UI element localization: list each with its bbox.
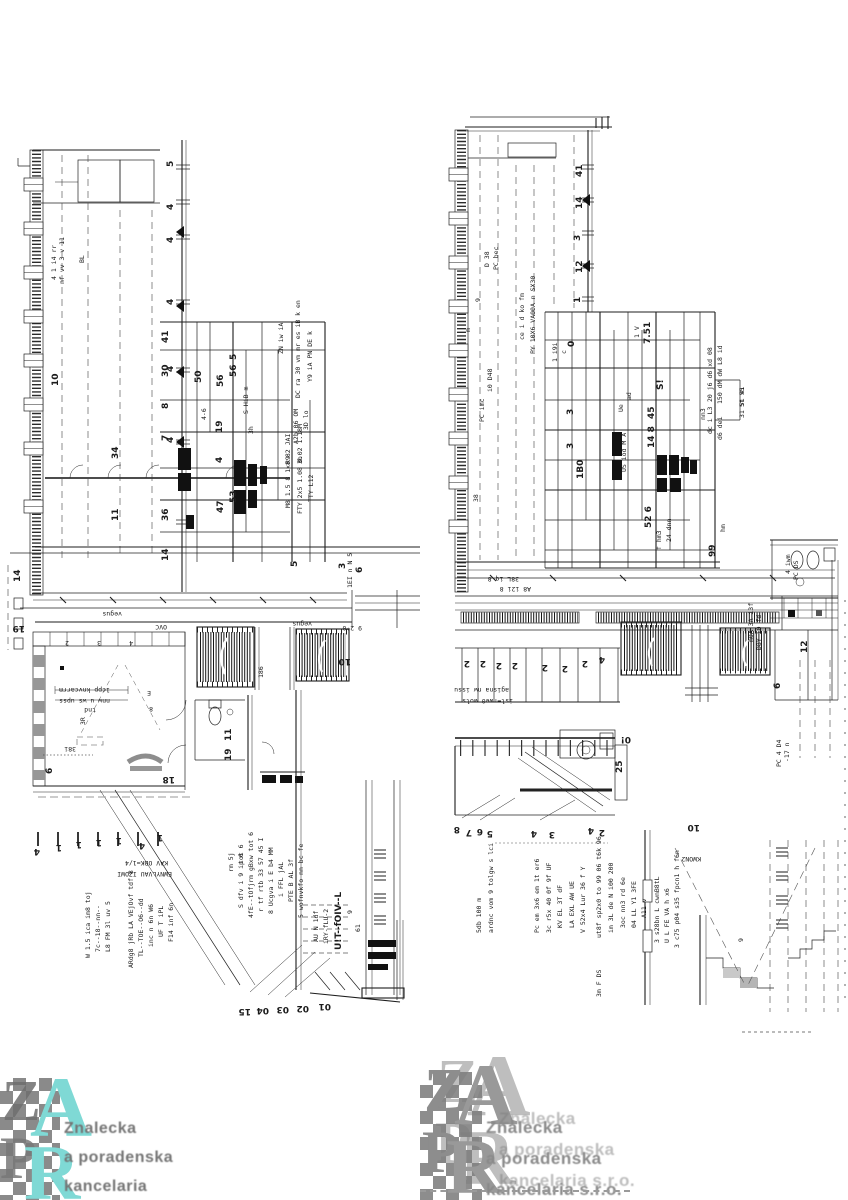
plan-label: 1: [56, 842, 62, 852]
labels-right: 41143121D 38PC bec9mi0 D48PC imc38ce i d…: [454, 164, 810, 997]
plan-label: 03: [276, 1004, 289, 1014]
plan-label: agisna nw issu: [454, 686, 509, 694]
plan-label: 04 LL Y1 3FE: [630, 881, 638, 928]
plan-label: c: [560, 350, 568, 354]
plan-label: 2: [480, 658, 486, 668]
plan-label: dc i L3: [706, 407, 714, 434]
plan-label: 47: [216, 500, 226, 513]
plan-label: 14: [161, 548, 171, 561]
plan-label: 1: [76, 839, 82, 849]
plan-label: 5db 100 m: [475, 898, 483, 933]
plan-label: 1: [573, 297, 583, 303]
plan-label: 8 Ucgva i E b4 MM: [267, 847, 275, 914]
plan-label: rm 5j: [227, 852, 235, 872]
watermark-text-center: Znalecka a poradenska kancelaria s.r.o.: [486, 1112, 622, 1200]
plan-label: 8: [149, 705, 153, 713]
plan-label: 7.51: [643, 322, 653, 344]
plan-label: nnw u ws upss: [59, 697, 110, 705]
plan-label: 25: [615, 760, 625, 773]
plan-label: PC imc: [478, 398, 486, 422]
plan-label: 2: [496, 660, 502, 670]
plan-label: 4: [166, 299, 176, 305]
plan-label: 3m F DS: [595, 970, 603, 997]
plan-label: 4 iwm: [784, 554, 792, 574]
plan-label: 3: [573, 235, 583, 241]
plan-label: PTE B AL 3f: [287, 859, 295, 902]
plan-label: m0A 3A i3f: [747, 603, 755, 642]
plan-label: 41: [575, 164, 585, 177]
plan-label: 0: [567, 341, 577, 347]
plan-label: 2: [562, 663, 568, 673]
plan-label: 4-6: [200, 408, 208, 420]
plan-label: 7: [161, 435, 171, 441]
plan-label: 3: [566, 443, 576, 449]
logo-divider: [420, 1190, 630, 1192]
labels-left: 544444104 1 i4 rrnf vv 3 v 11BL413087341…: [12, 161, 365, 1016]
plan-label: 186: [257, 666, 265, 678]
plan-label: 4: [588, 825, 594, 835]
plan-label: TL--TOE--O6--dd: [137, 898, 145, 957]
plan-label: UF T iPL: [157, 906, 165, 937]
plan-label: 10: [687, 822, 700, 832]
plan-label: U!T--fOIV--L: [334, 892, 344, 950]
plan-label: 1EI n N 5: [346, 553, 354, 588]
plan-label: 45: [647, 406, 657, 419]
plan-label: 7c--18--nn--: [94, 905, 102, 952]
plan-label: 150 dM dW L8 id: [716, 345, 724, 404]
plan-label: S dfv i 9 ip 6: [237, 853, 245, 908]
plan-label: 2: [65, 639, 69, 647]
plan-label: d6 dei: [716, 416, 724, 440]
plan-label: i FFL jAL: [277, 862, 285, 897]
plan-label: 56: [216, 374, 226, 387]
plan-label: 2: [542, 662, 548, 672]
plan-label: ce i d ko fm: [518, 293, 526, 340]
plan-label: OVC: [155, 623, 167, 631]
plan-label: 38L iq 8: [488, 575, 519, 583]
plan-label: KV EL 3T dF: [556, 885, 564, 928]
plan-label: ad: [625, 392, 633, 400]
plan-label: ARdg8 jRb LA VEjOvf tdf 8: [127, 870, 135, 968]
plan-label: 14 8: [647, 426, 657, 448]
watermark-logo-center: Z A P R Znalecka a poradenska kancelaria…: [420, 1062, 680, 1200]
watermark-logo-left: Z A P R Znalecka a poradenska kancelaria…: [0, 1072, 240, 1200]
plan-label: 9 2*0: [342, 624, 362, 632]
plan-label: 4fE--tOfjrm gBxw tot 6: [247, 832, 255, 918]
plan-label: 5: [290, 561, 300, 567]
plan-label: KWON2: [681, 855, 701, 863]
plan-label: 14: [13, 569, 23, 582]
plan-label: W 1.5 ica im8 toj: [84, 891, 92, 958]
plan-label: 1 V: [633, 326, 641, 338]
plan-label: m: [464, 328, 472, 332]
watermark-line: Znalecka: [64, 1114, 173, 1143]
plan-label: 1: [96, 837, 102, 847]
plan-label: 24 dnn: [665, 518, 673, 542]
plan-label: BL: [78, 255, 86, 263]
plan-label: R9: [284, 456, 292, 464]
plan-label: 3oc nn3 rd 6e: [619, 877, 627, 928]
plan-label: 6: [477, 826, 483, 836]
plan-label: 52 6: [644, 506, 654, 528]
plan-label: L8 FM 3l uv 5: [104, 901, 112, 952]
plan-label: 4: [599, 654, 605, 664]
plan-label: 8: [454, 824, 460, 834]
plan-label: A11 v: [640, 898, 648, 918]
plan-label: ardnc vom 9 tolgw s lci: [487, 843, 495, 933]
plan-label: 5: [229, 354, 239, 360]
plan-label: inc n 6n W6: [147, 904, 155, 947]
plan-label: 04: [256, 1005, 269, 1015]
plan-label: 2: [599, 827, 605, 837]
plan-label: 36: [161, 508, 171, 521]
plan-label: 19: [215, 420, 225, 433]
plan-label: 2: [464, 658, 470, 668]
plan-label: 3c r5x 40 0f 9f UF: [545, 862, 553, 933]
architectural-drawing: 544444104 1 i4 rrnf vv 3 v 11BL413087341…: [0, 0, 848, 1045]
plan-label: 8: [161, 403, 171, 409]
plan-label: KAV OBK=1/4: [125, 859, 168, 867]
plan-label: 38: [472, 494, 480, 502]
plan-label: ut8f sp2x0 to 99 06 t6k 96: [595, 836, 603, 938]
plan-label: PC bec: [492, 246, 500, 270]
plan-label: 11: [224, 728, 234, 741]
plan-label: isl=rwe0 wols: [462, 697, 513, 705]
plan-label: 30: [161, 364, 171, 377]
plan-label: PY 10X6 VA00A n SX30: [529, 276, 537, 354]
plan-label: r tf rtb 33 57 45 I: [257, 838, 265, 912]
plan-label: 4: [531, 828, 537, 838]
plan-label: Pc em 3x6 em 1t er6: [533, 859, 541, 933]
plan-label: 34: [111, 446, 121, 459]
plan-label: i0 D48: [486, 368, 494, 392]
plan-label: 0!: [621, 734, 631, 744]
plan-label: 12: [800, 640, 810, 653]
watermark-line: kancelaria s.r.o.: [486, 1174, 622, 1200]
plan-label: TTY L12: [307, 475, 315, 502]
plan-label: 02: [296, 1003, 309, 1013]
plan-label: nn3: [699, 408, 707, 420]
plan-label: D 38: [483, 251, 491, 267]
plan-label: iRY-fLU-2: [322, 909, 330, 944]
watermark-line: Znalecka: [486, 1112, 622, 1143]
watermark-line: kancelaria: [64, 1172, 173, 1200]
plan-label: 3 s28bn L cwnB8tL: [653, 876, 661, 943]
plan-label: AU N 1df: [312, 911, 320, 942]
plan-label: S!: [656, 379, 666, 390]
plan-label: 7: [466, 827, 472, 837]
plan-label: PC DS: [792, 560, 800, 580]
plan-label: 3 c75 p04 s35 fpcn1 h f6n: [673, 850, 681, 948]
plan-label: PC 4 D4: [775, 740, 783, 767]
plan-label: vegus: [292, 620, 312, 628]
plan-label: 4: [215, 457, 225, 463]
plan-label: 4 1 i4 rr: [50, 245, 58, 280]
plan-label: 9: [346, 910, 354, 914]
plan-label: 4: [166, 237, 176, 243]
plan-label: 4: [166, 204, 176, 210]
plan-label: 61: [354, 924, 362, 932]
watermark-line: a poradenska: [64, 1143, 173, 1172]
plan-label: US iod M A: [620, 433, 628, 472]
plan-label: tnd: [84, 706, 96, 714]
plan-label: -17 n: [783, 742, 791, 762]
plan-label: ZN iw iA: [277, 323, 285, 354]
plan-label: 10: [338, 656, 351, 666]
watermark-text-left: Znalecka a poradenska kancelaria s.r.o.: [64, 1114, 173, 1200]
plan-label: 5 wofnvkfo nn bc fe: [297, 844, 305, 918]
plan-label: A8 i2i 8: [500, 585, 531, 593]
plan-label: D8Y i0 fd: [755, 615, 763, 650]
plan-label: 6: [773, 683, 783, 689]
plan-label: 4: [139, 840, 145, 850]
plan-label: 3: [97, 639, 101, 647]
plan-label: 3R: [79, 717, 87, 725]
plan-label: Ue: [617, 404, 625, 412]
watermark-line: a poradenska: [486, 1143, 622, 1174]
plan-label: S HiB m: [242, 387, 250, 414]
plan-label: 2: [582, 658, 588, 668]
plan-label: Y9 iA PN DE k: [306, 331, 314, 382]
plan-label: 19: [224, 748, 234, 761]
plan-label: 9: [474, 298, 482, 302]
plan-label: V 52x4 Lur 36 f Y: [579, 866, 587, 933]
plan-label: 12: [575, 260, 585, 273]
plan-label: 41: [161, 330, 171, 343]
plan-label: 19: [12, 623, 25, 633]
plan-label: 4: [129, 639, 133, 647]
plan-label: F14 inf 6n: [167, 903, 175, 942]
plan-label: 5: [487, 828, 493, 838]
plan-label: 1B0: [576, 460, 586, 479]
plan-label: FTY 2x5 1.08 0.02 1.18M: [296, 424, 304, 514]
plan-label: 11: [111, 508, 121, 521]
plan-label: 3b: [296, 456, 304, 464]
plan-label: 3: [566, 409, 576, 415]
plan-label: 5: [166, 161, 176, 167]
plan-label: 50: [194, 370, 204, 383]
plan-label: hm: [719, 524, 727, 532]
plan-label: 18: [162, 774, 175, 784]
plan-label: 3: [549, 829, 555, 839]
plan-label: 6: [355, 567, 365, 573]
plan-label: DC ra 30 vm mr es iB k en: [294, 300, 302, 398]
plan-label: 1 i9i: [551, 342, 559, 362]
plan-label: nf vv 3 v 11: [58, 237, 66, 284]
plan-label: 56: [229, 364, 239, 377]
plan-label: 38i: [64, 745, 76, 753]
plan-label: 1: [157, 832, 163, 842]
plan-label: im 3L de N i00 200: [607, 862, 615, 933]
plan-label: 10: [51, 373, 61, 386]
plan-label: vegus: [102, 610, 122, 618]
plan-label: 01: [318, 1001, 331, 1011]
plan-label: EWNYLVAU IZOWI: [117, 870, 172, 878]
plan-label: 6: [45, 768, 55, 774]
plan-label: 20 j6 d6 xd 08: [706, 347, 714, 402]
plan-label: 53: [229, 490, 239, 503]
plan-label: 99: [708, 544, 718, 557]
plan-label: 15: [238, 1006, 251, 1016]
plan-label: 31 51 41: [738, 387, 746, 418]
plan-label: M8 1.5 8 1x8 82 JAI: [284, 434, 292, 508]
plan-label: LA EXL AW UE: [568, 881, 576, 928]
plan-label: 1cpp knvcarrm: [59, 686, 110, 694]
plan-label: U L FE VA h x6: [663, 888, 671, 943]
plan-sheet-page: 544444104 1 i4 rrnf vv 3 v 11BL413087341…: [0, 0, 848, 1200]
plan-label: 2: [512, 660, 518, 670]
plan-label: 9: [737, 938, 745, 942]
plan-label: 14: [575, 196, 585, 209]
plan-label: 4: [34, 846, 40, 856]
plan-label: E: [147, 689, 151, 697]
plan-label: 3h: [247, 426, 255, 434]
plan-label: f hm3: [655, 530, 663, 550]
plan-label: 1: [116, 835, 122, 845]
